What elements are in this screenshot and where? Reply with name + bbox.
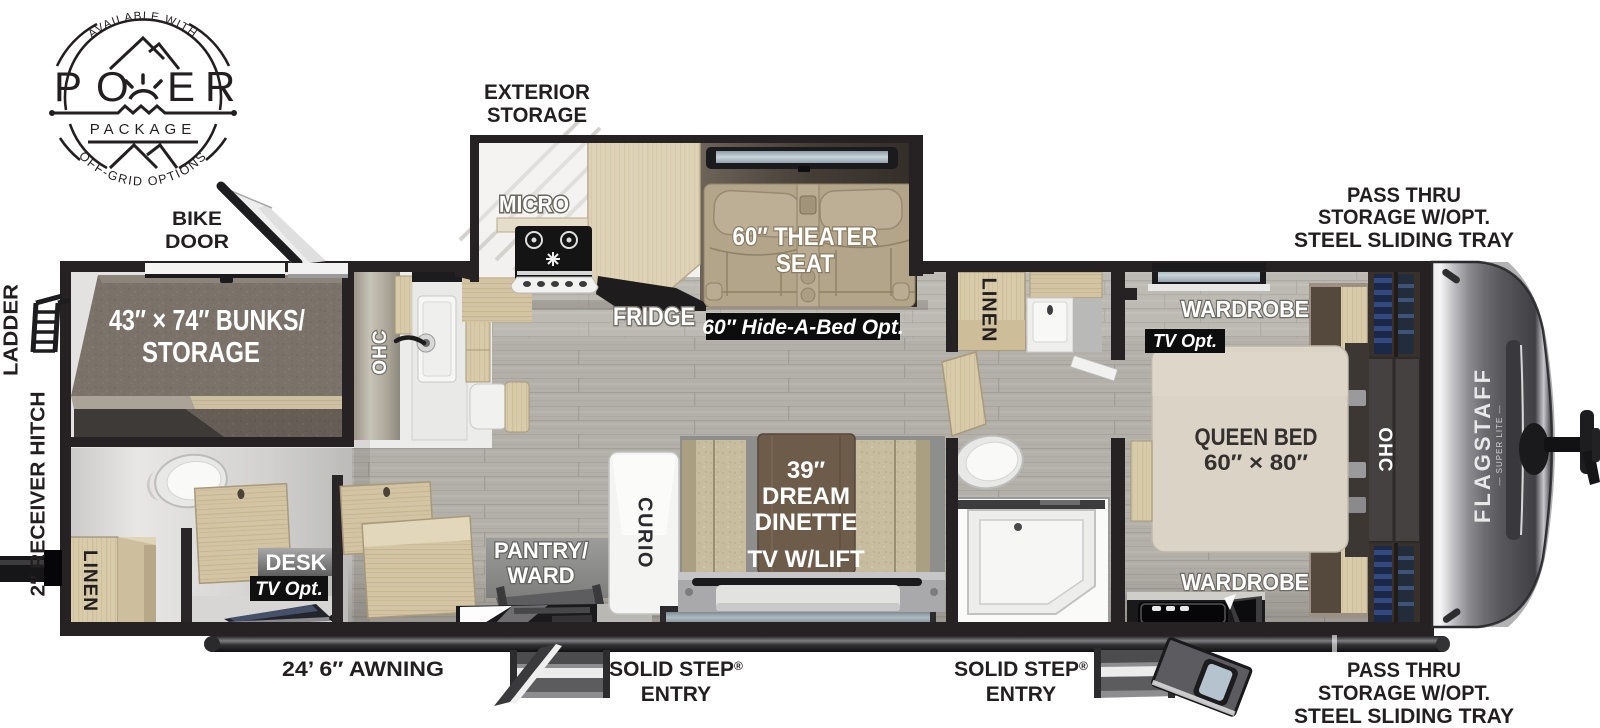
svg-text:43″ × 74″ BUNKS/: 43″ × 74″ BUNKS/ (109, 305, 305, 337)
svg-text:SOLID STEP®: SOLID STEP® (954, 658, 1088, 681)
svg-text:SEAT: SEAT (776, 250, 834, 278)
svg-text:LADDER: LADDER (0, 283, 22, 376)
svg-text:DREAM: DREAM (762, 483, 850, 510)
svg-text:PASS THRU: PASS THRU (1347, 184, 1461, 207)
svg-text:PACKAGE: PACKAGE (90, 121, 196, 138)
svg-text:SOLID STEP®: SOLID STEP® (609, 658, 743, 681)
svg-text:STEEL SLIDING TRAY: STEEL SLIDING TRAY (1294, 705, 1514, 728)
svg-text:WARDROBE: WARDROBE (1181, 296, 1309, 322)
svg-text:39″: 39″ (787, 457, 826, 484)
svg-text:ENTRY: ENTRY (641, 683, 711, 706)
svg-text:PASS THRU: PASS THRU (1347, 659, 1461, 682)
svg-text:60″ THEATER: 60″ THEATER (733, 223, 878, 251)
svg-text:— SUPER LITE —: — SUPER LITE — (1495, 404, 1504, 485)
svg-text:CURIO: CURIO (634, 497, 656, 569)
svg-text:TV W/LIFT: TV W/LIFT (747, 546, 865, 573)
svg-text:DOOR: DOOR (165, 232, 229, 253)
svg-text:QUEEN BED: QUEEN BED (1195, 424, 1318, 451)
svg-text:LINEN: LINEN (978, 278, 1000, 343)
svg-text:LINEN: LINEN (79, 550, 100, 612)
svg-text:FRIDGE: FRIDGE (613, 303, 695, 331)
svg-text:ER: ER (167, 63, 245, 110)
svg-text:60″ × 80″: 60″ × 80″ (1204, 450, 1309, 475)
svg-text:EXTERIOR: EXTERIOR (484, 81, 590, 104)
svg-text:PANTRY/: PANTRY/ (494, 538, 588, 563)
svg-text:2″ RECEIVER HITCH: 2″ RECEIVER HITCH (27, 392, 49, 597)
svg-text:FLAGSTAFF: FLAGSTAFF (1470, 367, 1495, 523)
svg-text:WARD: WARD (507, 563, 574, 588)
svg-text:OHC: OHC (1374, 427, 1395, 472)
svg-text:60″ Hide-A-Bed Opt.: 60″ Hide-A-Bed Opt. (702, 316, 903, 339)
svg-text:DINETTE: DINETTE (755, 509, 858, 536)
svg-text:DESK: DESK (265, 550, 326, 575)
svg-text:BIKE: BIKE (172, 209, 222, 230)
svg-text:STORAGE W/OPT.: STORAGE W/OPT. (1318, 682, 1490, 705)
svg-text:STEEL SLIDING TRAY: STEEL SLIDING TRAY (1294, 229, 1514, 252)
svg-text:STORAGE W/OPT.: STORAGE W/OPT. (1318, 206, 1490, 229)
svg-text:WARDROBE: WARDROBE (1181, 569, 1309, 595)
svg-text:TV Opt.: TV Opt. (1153, 331, 1217, 351)
svg-text:PO: PO (54, 63, 143, 110)
svg-text:TV Opt.: TV Opt. (255, 579, 323, 600)
svg-text:ENTRY: ENTRY (986, 683, 1056, 706)
svg-text:STORAGE: STORAGE (487, 104, 587, 127)
svg-text:STORAGE: STORAGE (142, 337, 260, 369)
svg-text:MICRO: MICRO (499, 191, 569, 217)
svg-text:OHC: OHC (370, 329, 391, 374)
svg-text:24’ 6″ AWNING: 24’ 6″ AWNING (282, 658, 444, 681)
